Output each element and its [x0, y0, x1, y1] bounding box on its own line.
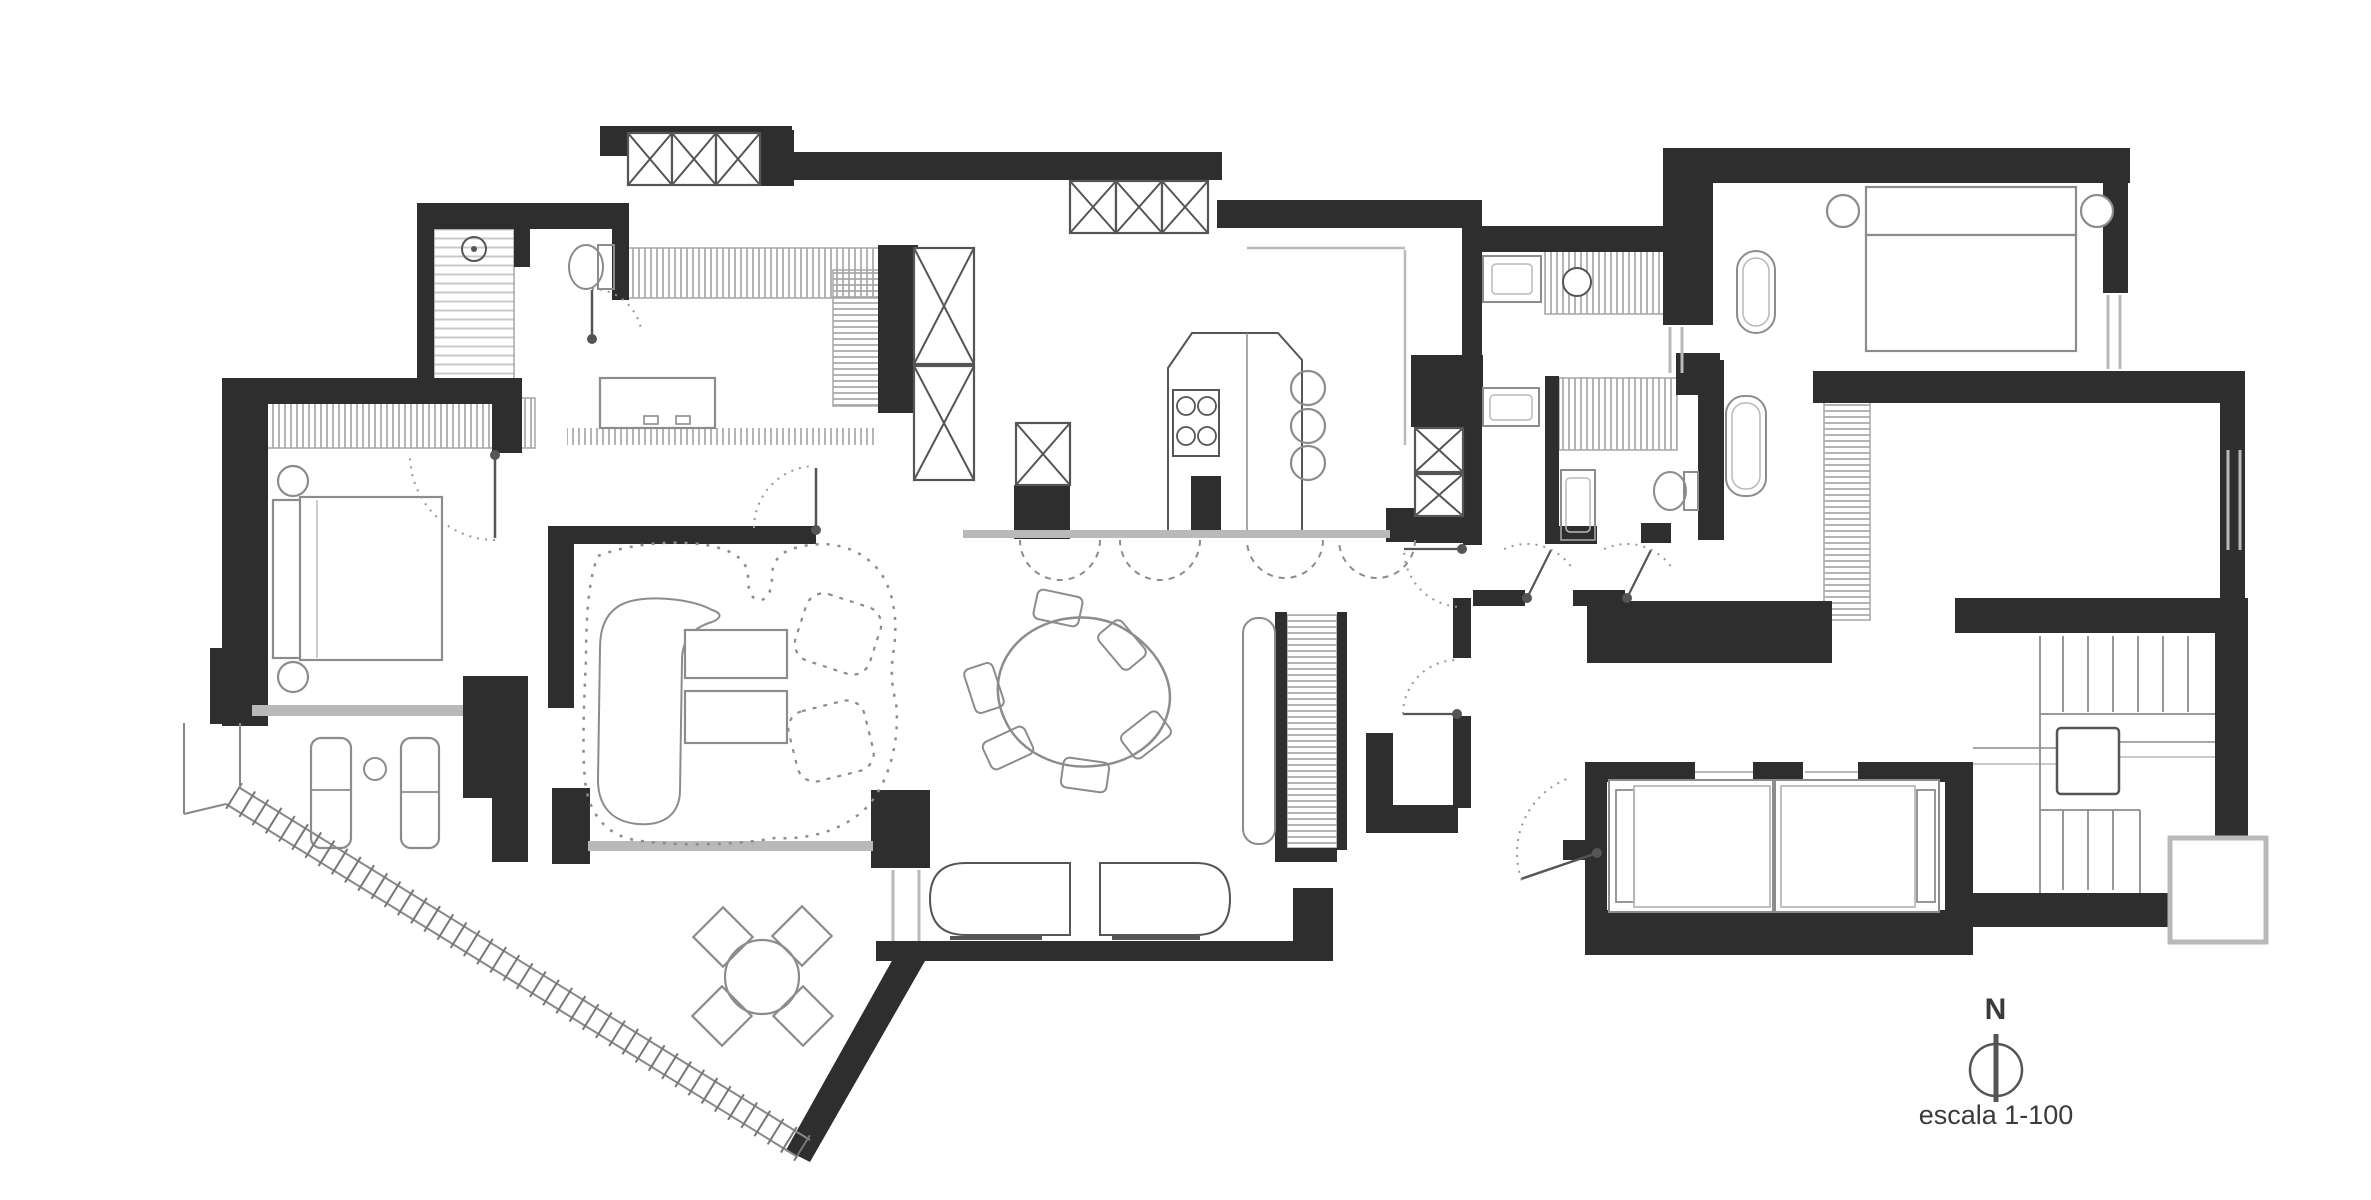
- cabinet-x-8: [914, 366, 974, 480]
- soaking-tub-inner: [1743, 258, 1769, 326]
- bathtub-inner: [1732, 403, 1760, 489]
- dining-table: [998, 618, 1170, 767]
- armchair-1: [790, 589, 886, 680]
- bed2-pillow-band: [1866, 187, 2076, 235]
- wall-wet-left-a: [1462, 226, 1482, 358]
- cabinet-x-2: [672, 133, 716, 185]
- wall-living-top: [552, 526, 816, 544]
- door-hall-swing: [1404, 549, 1457, 607]
- shower-1-head-dot: [471, 246, 477, 252]
- wall-dining-ward-left: [1275, 612, 1287, 850]
- wall-trbed-bot: [1813, 371, 2245, 403]
- wall-dining-ward-right: [1337, 612, 1347, 850]
- door-corridor-swing: [1403, 660, 1455, 714]
- shower-2-floor: [1559, 378, 1677, 450]
- north-label: N: [1966, 993, 2026, 1027]
- wall-door-stub-b: [1573, 590, 1625, 606]
- wall-wet-block: [1411, 355, 1483, 427]
- wall-terrace-pier-b: [492, 676, 528, 862]
- nightstand-1a: [278, 466, 308, 496]
- bed2-mattress: [1866, 235, 2076, 351]
- kitchen-island: [1168, 333, 1302, 535]
- wall-kitchen-left: [878, 245, 918, 413]
- bench-sofa-2: [1100, 863, 1230, 935]
- wall-bath-bot-b: [1641, 523, 1671, 543]
- wall-wet-stub: [1415, 515, 1463, 543]
- lounger-2: [401, 738, 439, 848]
- cabinet-x-3: [716, 133, 760, 185]
- door-bath2-leaf: [1627, 550, 1651, 598]
- door-dining-hinge: [811, 525, 821, 535]
- door-entry-hinge: [587, 334, 597, 344]
- laundry-drum: [1563, 268, 1591, 296]
- wall-entry-top: [417, 203, 629, 229]
- wall-corridor-top: [1587, 601, 1832, 663]
- dressing-floor-mat: [567, 428, 877, 445]
- cabinet-x-1: [628, 133, 672, 185]
- wall-bedroom1-corner: [210, 648, 254, 724]
- cabinet-x-5: [1116, 181, 1162, 233]
- wall-stair-top: [1955, 598, 2248, 633]
- cabinet-x-7: [914, 248, 974, 364]
- wall-kitchen-x-divider: [760, 130, 794, 186]
- door-bath2-swing: [1604, 544, 1674, 571]
- kitchen-sink-black: [1191, 476, 1221, 535]
- wall-corridor-bot: [1378, 805, 1458, 833]
- wall-bedroom1-pier: [492, 381, 522, 453]
- wall-entry-left: [417, 229, 434, 381]
- wall-trbed-top: [1663, 148, 2130, 183]
- folding-door-4: [1339, 540, 1415, 578]
- wardrobe-dining: [1287, 615, 1337, 848]
- dining-chair-6: [963, 661, 1006, 714]
- cabinet-x-6: [1162, 181, 1208, 233]
- glass-bedroom1-terrace: [252, 705, 463, 716]
- toilet-1-tank: [598, 245, 614, 289]
- wall-dining-ward-bot: [1275, 848, 1337, 862]
- wall-living-left-top: [548, 526, 574, 708]
- dining-side-panel: [1243, 618, 1275, 844]
- wardrobe-corridor: [1824, 378, 1870, 620]
- cabinet-x-9: [1016, 423, 1070, 485]
- wall-corridor-post-b: [1453, 716, 1471, 808]
- nightstand-2a: [1827, 195, 1859, 227]
- wall-terrace-diagonal: [786, 950, 925, 1162]
- cabinet-x-4: [1070, 181, 1116, 233]
- coffee-table-1: [685, 630, 787, 678]
- door-bedroom1-hinge: [490, 450, 500, 460]
- nightstand-1b: [278, 662, 308, 692]
- wardrobe-dressing-side: [833, 270, 879, 406]
- bench-sofa-1: [930, 863, 1070, 935]
- door-bath1-swing: [1504, 544, 1574, 571]
- folding-door-1: [1020, 540, 1100, 580]
- stair-balcony: [2170, 838, 2266, 942]
- wall-door-stub-a: [1473, 590, 1525, 606]
- wall-kitchen-top-c: [1217, 200, 1482, 228]
- bed1-headboard: [273, 500, 303, 658]
- cabinet-x-11: [1415, 474, 1463, 516]
- wall-trbed-leftcol: [1663, 183, 1713, 325]
- cabinet-x-10: [1415, 428, 1463, 472]
- stair-core: [2057, 728, 2119, 794]
- wall-bedroom2-bot: [1585, 910, 1957, 955]
- coffee-table-2: [685, 691, 787, 743]
- wall-stair-bot: [1961, 893, 2169, 927]
- wall-bench-pier: [871, 790, 930, 868]
- nightstand-2b: [2081, 195, 2113, 227]
- bath-sink-2-basin: [1566, 478, 1590, 532]
- door-bath1-leaf: [1527, 550, 1551, 598]
- toilet-2-bowl: [1654, 472, 1686, 510]
- plan-elements: [184, 126, 2266, 1162]
- wall-bath-bot-a: [1545, 526, 1597, 544]
- folding-door-3: [1247, 540, 1323, 578]
- lounger-side-table: [364, 758, 386, 780]
- door-dining-swing: [754, 466, 814, 528]
- wall-bench-bot: [876, 941, 1296, 961]
- wall-bench-step: [1293, 888, 1333, 961]
- bath-sink-1-basin: [1490, 395, 1532, 420]
- wall-living-left-bot: [552, 788, 590, 864]
- counter-bottom: [963, 530, 1390, 538]
- armchair-2: [784, 697, 877, 786]
- wall-kitchen-top-b: [790, 152, 1222, 180]
- floor-plan: N escala 1-100: [0, 0, 2371, 1200]
- laundry-sink-basin: [1492, 264, 1532, 294]
- lounger-1: [311, 738, 351, 848]
- wall-bath-left: [1545, 376, 1559, 534]
- scale-label: escala 1-100: [1876, 1100, 2116, 1131]
- folding-door-2: [1120, 540, 1200, 580]
- bed1-mattress: [300, 497, 442, 660]
- wall-shower-wc-divider: [514, 227, 530, 267]
- railing-corner-c: [184, 804, 226, 814]
- wall-bath-right-b: [1698, 360, 1724, 540]
